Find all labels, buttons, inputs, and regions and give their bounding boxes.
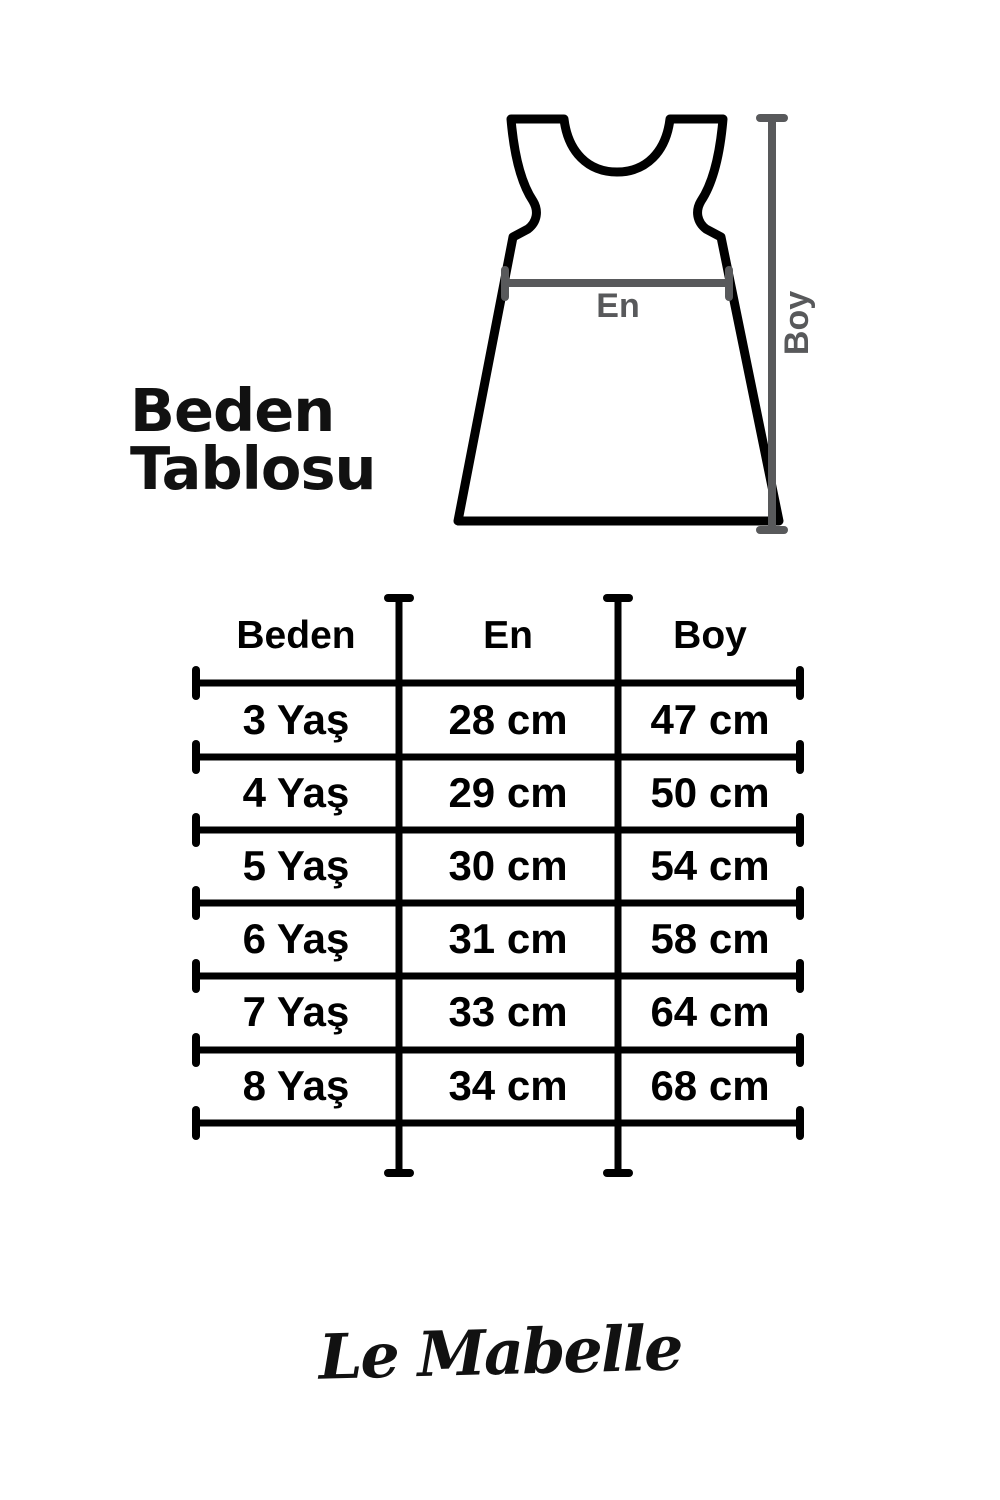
- size-chart-page: En Boy: [0, 0, 1000, 1500]
- width-measure-label: En: [596, 287, 639, 325]
- row-5-size: 8 Yaş: [193, 1060, 399, 1112]
- row-2-boy: 54 cm: [617, 840, 803, 892]
- dress-diagram: En Boy: [0, 0, 1000, 1500]
- row-0-en: 28 cm: [399, 694, 617, 746]
- row-1-en: 29 cm: [399, 767, 617, 819]
- row-0-size: 3 Yaş: [193, 694, 399, 746]
- row-2-size: 5 Yaş: [193, 840, 399, 892]
- row-4-boy: 64 cm: [617, 986, 803, 1038]
- row-1-boy: 50 cm: [617, 767, 803, 819]
- height-measure-label: Boy: [778, 291, 816, 355]
- row-2-en: 30 cm: [399, 840, 617, 892]
- height-measure-line: Boy: [760, 118, 816, 530]
- header-cell-beden: Beden: [193, 610, 399, 662]
- row-5-en: 34 cm: [399, 1060, 617, 1112]
- row-3-size: 6 Yaş: [193, 913, 399, 965]
- header-cell-boy: Boy: [617, 610, 803, 662]
- row-4-en: 33 cm: [399, 986, 617, 1038]
- row-4-size: 7 Yaş: [193, 986, 399, 1038]
- row-1-size: 4 Yaş: [193, 767, 399, 819]
- row-3-boy: 58 cm: [617, 913, 803, 965]
- header-cell-en: En: [399, 610, 617, 662]
- row-5-boy: 68 cm: [617, 1060, 803, 1112]
- row-0-boy: 47 cm: [617, 694, 803, 746]
- width-measure-line: En: [503, 270, 731, 325]
- page-title: Beden Tablosu: [130, 382, 430, 498]
- row-3-en: 31 cm: [399, 913, 617, 965]
